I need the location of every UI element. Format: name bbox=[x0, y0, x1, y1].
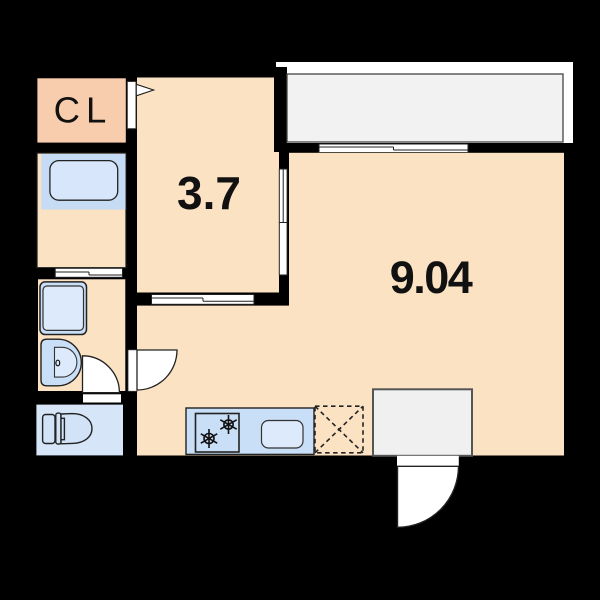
svg-text:9.04: 9.04 bbox=[390, 252, 473, 303]
svg-text:CL: CL bbox=[54, 90, 113, 131]
svg-text:3.7: 3.7 bbox=[177, 167, 241, 219]
